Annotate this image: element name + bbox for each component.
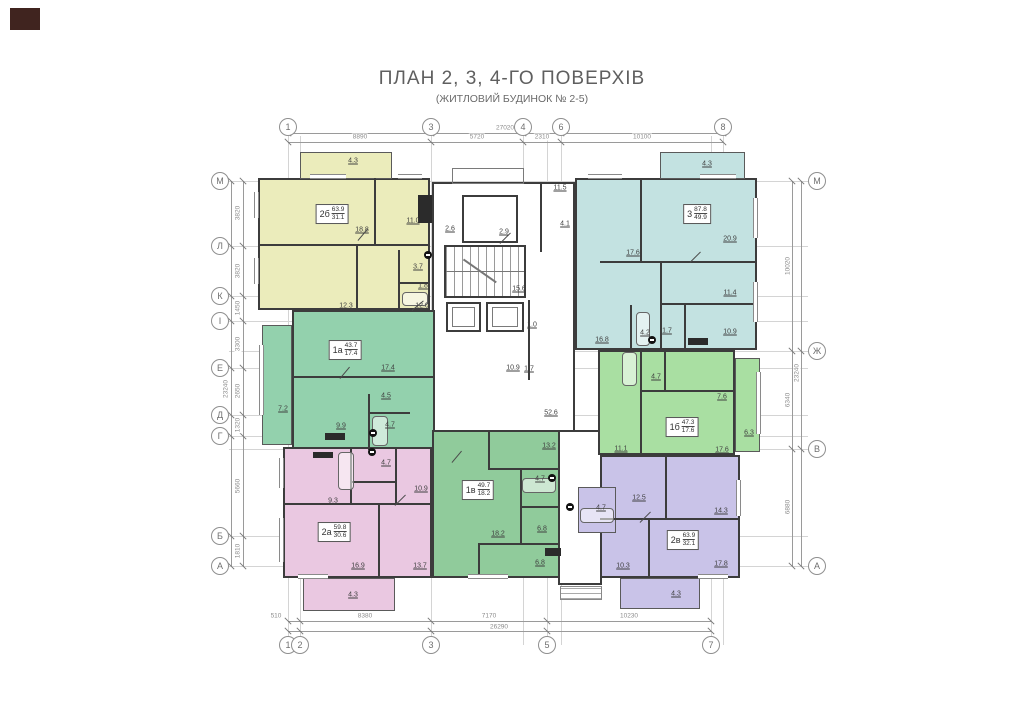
axis-marker-4: 4 bbox=[514, 118, 532, 136]
apartment-type: 1в bbox=[466, 485, 476, 495]
area-total: 59.8 bbox=[334, 524, 347, 531]
apartment-area-fraction: 47.317.6 bbox=[682, 419, 695, 435]
apartment-2а-room-area-label: 16.9 bbox=[351, 563, 365, 570]
axis-marker-3: 3 bbox=[422, 118, 440, 136]
dimension-value: 8890 bbox=[352, 134, 368, 141]
axis-marker-К: К bbox=[211, 287, 229, 305]
partition-wall bbox=[640, 350, 642, 455]
partition-wall bbox=[664, 350, 666, 390]
apartment-1б-room-area-label: 6.3 bbox=[744, 430, 754, 437]
area-total: 87.8 bbox=[694, 206, 707, 213]
partition-wall bbox=[660, 303, 757, 305]
apartment-3-area bbox=[575, 178, 757, 350]
window bbox=[310, 174, 346, 179]
apartment-2б-room-area-label: 18.8 bbox=[355, 227, 369, 234]
apartment-1а-room-area-label: 4.5 bbox=[381, 393, 391, 400]
apartment-2б-room-area-label: 3.7 bbox=[413, 264, 423, 271]
apartment-label-3: 387.849.9 bbox=[683, 204, 711, 224]
vent-shaft-icon bbox=[566, 503, 574, 511]
vent-shaft-icon bbox=[648, 336, 656, 344]
dimension-value: 23240 bbox=[223, 379, 230, 399]
window bbox=[259, 345, 264, 415]
window bbox=[468, 574, 508, 579]
apartment-label-2б: 2б63.931.1 bbox=[316, 204, 349, 224]
apartment-3-room-area-label: 4.3 bbox=[702, 161, 712, 168]
dimension-value: 10100 bbox=[632, 134, 652, 141]
apartment-type: 1б bbox=[670, 422, 680, 432]
apartment-2в-room-area-label: 10.3 bbox=[616, 563, 630, 570]
apartment-2б-room-area-label: 11.0 bbox=[406, 218, 419, 225]
common-room-area-label: 4.1 bbox=[560, 221, 570, 228]
apartment-2в-room-area-label: 17.8 bbox=[714, 561, 728, 568]
apartment-1а-room-area-label: 4.7 bbox=[385, 422, 395, 429]
apartment-2в-room-area-label: 4.7 bbox=[596, 505, 606, 512]
elevator-car-1 bbox=[452, 307, 475, 327]
window bbox=[298, 574, 328, 579]
apartment-3-room-area-label: 20.9 bbox=[723, 236, 737, 243]
partition-wall bbox=[292, 376, 435, 378]
area-living: 17.4 bbox=[345, 350, 358, 358]
window bbox=[254, 192, 259, 218]
axis-marker-6: 6 bbox=[552, 118, 570, 136]
axis-marker-А: А bbox=[211, 557, 229, 575]
apartment-area-fraction: 59.830.6 bbox=[334, 524, 347, 540]
apartment-type: 1а bbox=[333, 345, 343, 355]
plan-title: ПЛАН 2, 3, 4-ГО ПОВЕРХІВ bbox=[0, 68, 1024, 90]
window bbox=[588, 174, 622, 179]
window bbox=[753, 198, 758, 238]
area-living: 30.6 bbox=[334, 532, 347, 540]
apartment-type: 3 bbox=[687, 209, 692, 219]
dimension-value: 3820 bbox=[235, 205, 242, 221]
apartment-area-fraction: 63.931.1 bbox=[332, 206, 345, 222]
partition-wall bbox=[600, 518, 740, 520]
vent-shaft-icon bbox=[369, 429, 377, 437]
axis-marker-Ж: Ж bbox=[808, 342, 826, 360]
partition-wall bbox=[488, 468, 560, 470]
kitchen-appliance-icon bbox=[688, 338, 708, 345]
dimension-value: 10230 bbox=[619, 613, 639, 620]
dimension-value: 6880 bbox=[785, 499, 792, 515]
vent-shaft-icon bbox=[424, 251, 432, 259]
bathtub-icon bbox=[622, 352, 637, 386]
area-living: 31.1 bbox=[332, 214, 345, 222]
vent-shaft-icon bbox=[368, 448, 376, 456]
axis-marker-М: М bbox=[211, 172, 229, 190]
dimension-value: 6340 bbox=[785, 392, 792, 408]
apartment-2б-room-area-label: 1.8 bbox=[418, 283, 428, 290]
plan-subtitle: (ЖИТЛОВИЙ БУДИНОК № 2-5) bbox=[0, 93, 1024, 105]
common-room-area-label: 2.6 bbox=[445, 226, 455, 233]
partition-wall bbox=[520, 506, 560, 508]
apartment-label-2в: 2в63.932.1 bbox=[667, 530, 699, 550]
apartment-1в-room-area-label: 13.2 bbox=[542, 443, 556, 450]
partition-wall bbox=[640, 178, 642, 263]
apartment-area-fraction: 49.718.2 bbox=[478, 482, 491, 498]
apartment-1a-balcony bbox=[262, 325, 292, 445]
axis-marker-Б: Б bbox=[211, 527, 229, 545]
partition-wall bbox=[368, 412, 410, 414]
partition-wall bbox=[478, 543, 560, 545]
apartment-1в-room-area-label: 4.7 bbox=[535, 476, 545, 483]
apartment-2v-balcony bbox=[620, 578, 700, 609]
apartment-1б-room-area-label: 17.6 bbox=[715, 447, 729, 454]
kitchen-appliance-icon bbox=[545, 548, 561, 556]
dimension-value: 1810 bbox=[235, 543, 242, 559]
window bbox=[700, 174, 736, 179]
dimension-value: 3300 bbox=[235, 336, 242, 352]
apartment-1б-room-area-label: 4.7 bbox=[651, 374, 661, 381]
apartment-area-fraction: 63.932.1 bbox=[683, 532, 696, 548]
apartment-1в-room-area-label: 18.2 bbox=[491, 531, 505, 538]
dimension-value: 27020 bbox=[495, 125, 515, 132]
partition-wall bbox=[283, 503, 432, 505]
apartment-type: 2б bbox=[320, 209, 330, 219]
apartment-1в-room-area-label: 6.8 bbox=[535, 560, 545, 567]
apartment-1a-area bbox=[292, 310, 435, 450]
apartment-3-room-area-label: 1.7 bbox=[662, 328, 672, 335]
apartment-area-fraction: 43.717.4 bbox=[345, 342, 358, 358]
elevator-car-2 bbox=[492, 307, 518, 327]
dimension-line bbox=[231, 181, 232, 566]
partition-wall bbox=[640, 390, 735, 392]
apartment-type: 2а bbox=[322, 527, 332, 537]
entrance-porch bbox=[452, 168, 524, 184]
partition-wall bbox=[488, 430, 490, 470]
corner-mark bbox=[10, 8, 40, 30]
apartment-1б-room-area-label: 7.6 bbox=[717, 394, 727, 401]
axis-marker-І: І bbox=[211, 312, 229, 330]
window bbox=[736, 480, 741, 516]
area-living: 17.6 bbox=[682, 427, 695, 435]
axis-marker-А: А bbox=[808, 557, 826, 575]
apartment-3-room-area-label: 11.4 bbox=[723, 290, 736, 297]
apartment-2а-room-area-label: 10.9 bbox=[414, 486, 428, 493]
partition-wall bbox=[600, 261, 757, 263]
dimension-value: 1320 bbox=[235, 417, 242, 433]
apartment-2в-room-area-label: 12.5 bbox=[632, 495, 646, 502]
partition-wall bbox=[630, 305, 632, 350]
axis-marker-В: В bbox=[808, 440, 826, 458]
title-block: ПЛАН 2, 3, 4-ГО ПОВЕРХІВ (ЖИТЛОВИЙ БУДИН… bbox=[0, 68, 1024, 105]
apartment-label-2а: 2а59.830.6 bbox=[318, 522, 351, 542]
dimension-line bbox=[801, 181, 802, 566]
entrance-vestibule bbox=[462, 195, 518, 243]
area-total: 43.7 bbox=[345, 342, 358, 349]
apartment-2б-room-area-label: 4.3 bbox=[348, 158, 358, 165]
partition-wall bbox=[258, 244, 430, 246]
apartment-2а-room-area-label: 9.3 bbox=[328, 498, 338, 505]
window bbox=[279, 518, 284, 562]
kitchen-appliance-icon bbox=[325, 433, 345, 440]
partition-wall bbox=[648, 520, 650, 578]
dimension-value: 26290 bbox=[489, 624, 509, 631]
common-room-area-label: 11.5 bbox=[553, 185, 566, 192]
window bbox=[756, 372, 761, 434]
axis-marker-2: 2 bbox=[291, 636, 309, 654]
area-living: 49.9 bbox=[694, 214, 707, 222]
dimension-value: 1450 bbox=[235, 300, 242, 316]
apartment-2б-room-area-label: 12.3 bbox=[339, 303, 353, 310]
apartment-label-1б: 1б47.317.6 bbox=[666, 417, 699, 437]
apartment-1а-room-area-label: 9.9 bbox=[336, 423, 346, 430]
apartment-2а-room-area-label: 4.7 bbox=[381, 460, 391, 467]
partition-wall bbox=[395, 447, 397, 505]
dimension-value: 10020 bbox=[785, 256, 792, 276]
partition-wall bbox=[356, 246, 358, 310]
apartment-1v-area bbox=[432, 430, 560, 578]
apartment-type: 2в bbox=[671, 535, 681, 545]
apartment-1а-room-area-label: 7.2 bbox=[278, 406, 288, 413]
common-room-area-label: 15.6 bbox=[512, 286, 526, 293]
area-total: 63.9 bbox=[332, 206, 345, 213]
window bbox=[753, 282, 758, 322]
apartment-2б-room-area-label: 12.0 bbox=[415, 303, 429, 310]
kitchen-appliance-icon bbox=[313, 452, 333, 458]
apartment-2а-room-area-label: 13.7 bbox=[413, 563, 427, 570]
window bbox=[698, 574, 728, 579]
axis-marker-3: 3 bbox=[422, 636, 440, 654]
partition-wall bbox=[378, 505, 380, 578]
partition-wall bbox=[684, 305, 686, 350]
dimension-value: 5660 bbox=[235, 478, 242, 494]
dimension-value: 2310 bbox=[534, 134, 550, 141]
partition-wall bbox=[368, 394, 370, 450]
dimension-value: 2650 bbox=[235, 383, 242, 399]
apartment-2в-room-area-label: 4.3 bbox=[671, 591, 681, 598]
kitchen-appliance-icon bbox=[418, 195, 432, 223]
vent-shaft-icon bbox=[548, 474, 556, 482]
apartment-2a-area bbox=[283, 447, 432, 578]
area-living: 18.2 bbox=[478, 490, 491, 498]
partition-wall bbox=[540, 182, 542, 252]
apartment-1b-area bbox=[598, 350, 735, 455]
window bbox=[279, 458, 284, 488]
axis-marker-8: 8 bbox=[714, 118, 732, 136]
apartment-2в-room-area-label: 14.3 bbox=[714, 508, 728, 515]
floor-plan: 18.811.012.312.03.71.84.32б63.931.117.62… bbox=[0, 0, 1024, 724]
dimension-value: 23240 bbox=[794, 363, 801, 383]
dimension-value: 7170 bbox=[481, 613, 497, 620]
apartment-3-room-area-label: 4.2 bbox=[640, 330, 650, 337]
axis-marker-Л: Л bbox=[211, 237, 229, 255]
dimension-value: 8380 bbox=[357, 613, 373, 620]
dimension-value: 510 bbox=[270, 613, 283, 620]
area-living: 32.1 bbox=[683, 540, 696, 548]
area-total: 47.3 bbox=[682, 419, 695, 426]
common-room-area-label: 1.0 bbox=[527, 322, 537, 329]
entrance-steps bbox=[560, 586, 602, 600]
partition-wall bbox=[374, 178, 376, 246]
apartment-label-1в: 1в49.718.2 bbox=[462, 480, 494, 500]
axis-marker-1: 1 bbox=[279, 118, 297, 136]
axis-marker-Е: Е bbox=[211, 359, 229, 377]
axis-marker-7: 7 bbox=[702, 636, 720, 654]
common-room-area-label: 2.9 bbox=[499, 229, 509, 236]
partition-wall bbox=[478, 543, 480, 578]
apartment-3-room-area-label: 17.6 bbox=[626, 250, 640, 257]
apartment-area-fraction: 87.849.9 bbox=[694, 206, 707, 222]
dimension-line bbox=[243, 181, 244, 566]
apartment-1а-room-area-label: 17.4 bbox=[381, 365, 395, 372]
axis-marker-5: 5 bbox=[538, 636, 556, 654]
dimension-value: 5720 bbox=[469, 134, 485, 141]
partition-wall bbox=[660, 263, 662, 350]
common-room-area-label: 10.9 bbox=[506, 365, 520, 372]
common-room-area-label: 52.6 bbox=[544, 410, 558, 417]
apartment-label-1а: 1а43.717.4 bbox=[329, 340, 362, 360]
apartment-1в-room-area-label: 6.8 bbox=[537, 526, 547, 533]
common-room-area-label: 1.7 bbox=[524, 366, 534, 373]
dimension-line bbox=[288, 142, 723, 143]
apartment-3-room-area-label: 16.8 bbox=[595, 337, 609, 344]
axis-marker-Д: Д bbox=[211, 406, 229, 424]
area-total: 63.9 bbox=[683, 532, 696, 539]
axis-marker-М: М bbox=[808, 172, 826, 190]
staircase-landing-line bbox=[446, 271, 524, 272]
window bbox=[398, 174, 422, 179]
window bbox=[254, 258, 259, 284]
partition-wall bbox=[350, 481, 395, 483]
bathtub-icon bbox=[338, 452, 354, 490]
axis-marker-Г: Г bbox=[211, 427, 229, 445]
apartment-3-room-area-label: 10.9 bbox=[723, 329, 737, 336]
dimension-value: 3820 bbox=[235, 263, 242, 279]
apartment-2а-room-area-label: 4.3 bbox=[348, 592, 358, 599]
partition-wall bbox=[398, 250, 400, 310]
partition-wall bbox=[665, 455, 667, 518]
area-total: 49.7 bbox=[478, 482, 491, 489]
dimension-line bbox=[288, 621, 711, 622]
dimension-line bbox=[288, 631, 711, 632]
apartment-1б-room-area-label: 11.1 bbox=[614, 446, 627, 453]
